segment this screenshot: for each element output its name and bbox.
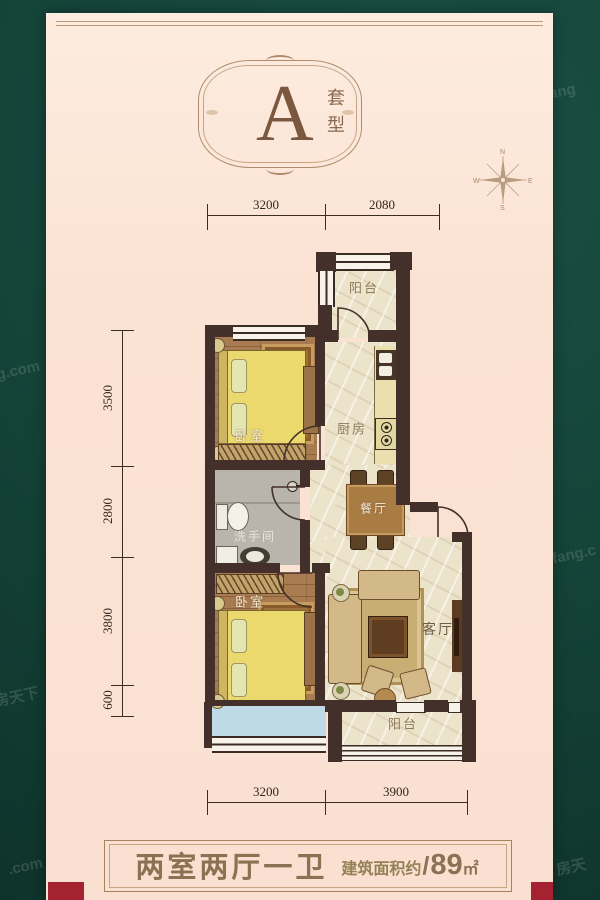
room-label-kitchen: 厨房 (337, 419, 367, 438)
door-arc-entrance (438, 507, 468, 537)
door-arc-bedroom-bottom (278, 573, 312, 607)
door-arcs (0, 0, 600, 900)
area-unit: ㎡ (463, 855, 479, 879)
room-label-bedroom-top: 卧室 (235, 426, 265, 445)
ribbon-red-right (531, 882, 553, 900)
area-label: 建筑面积约 (341, 855, 421, 879)
room-label-bathroom: 洗手间 (234, 528, 276, 545)
room-label-living: 客厅 (422, 619, 454, 639)
floorplan-poster: Fang g.com 房天下 fang.c A 套型 (0, 0, 600, 900)
room-label-balcony-bottom: 阳台 (388, 714, 418, 733)
layout-title: 两室两厅一卫 (135, 844, 327, 886)
door-arc-bedroom-top (284, 426, 320, 462)
room-label-bedroom-bottom: 卧室 (235, 592, 265, 611)
door-arc-balcony-top (338, 308, 370, 340)
room-label-balcony-top: 阳台 (349, 278, 379, 297)
footer-summary: 两室两厅一卫 建筑面积约 / 89 ㎡ (104, 840, 510, 890)
door-arc-bathroom (272, 487, 305, 520)
area-separator: / (422, 852, 429, 881)
area-value: 89 (430, 849, 462, 882)
ribbon-red-left (48, 882, 84, 900)
area-text: 建筑面积约 / 89 ㎡ (341, 849, 478, 882)
room-label-dining: 餐厅 (360, 500, 388, 517)
